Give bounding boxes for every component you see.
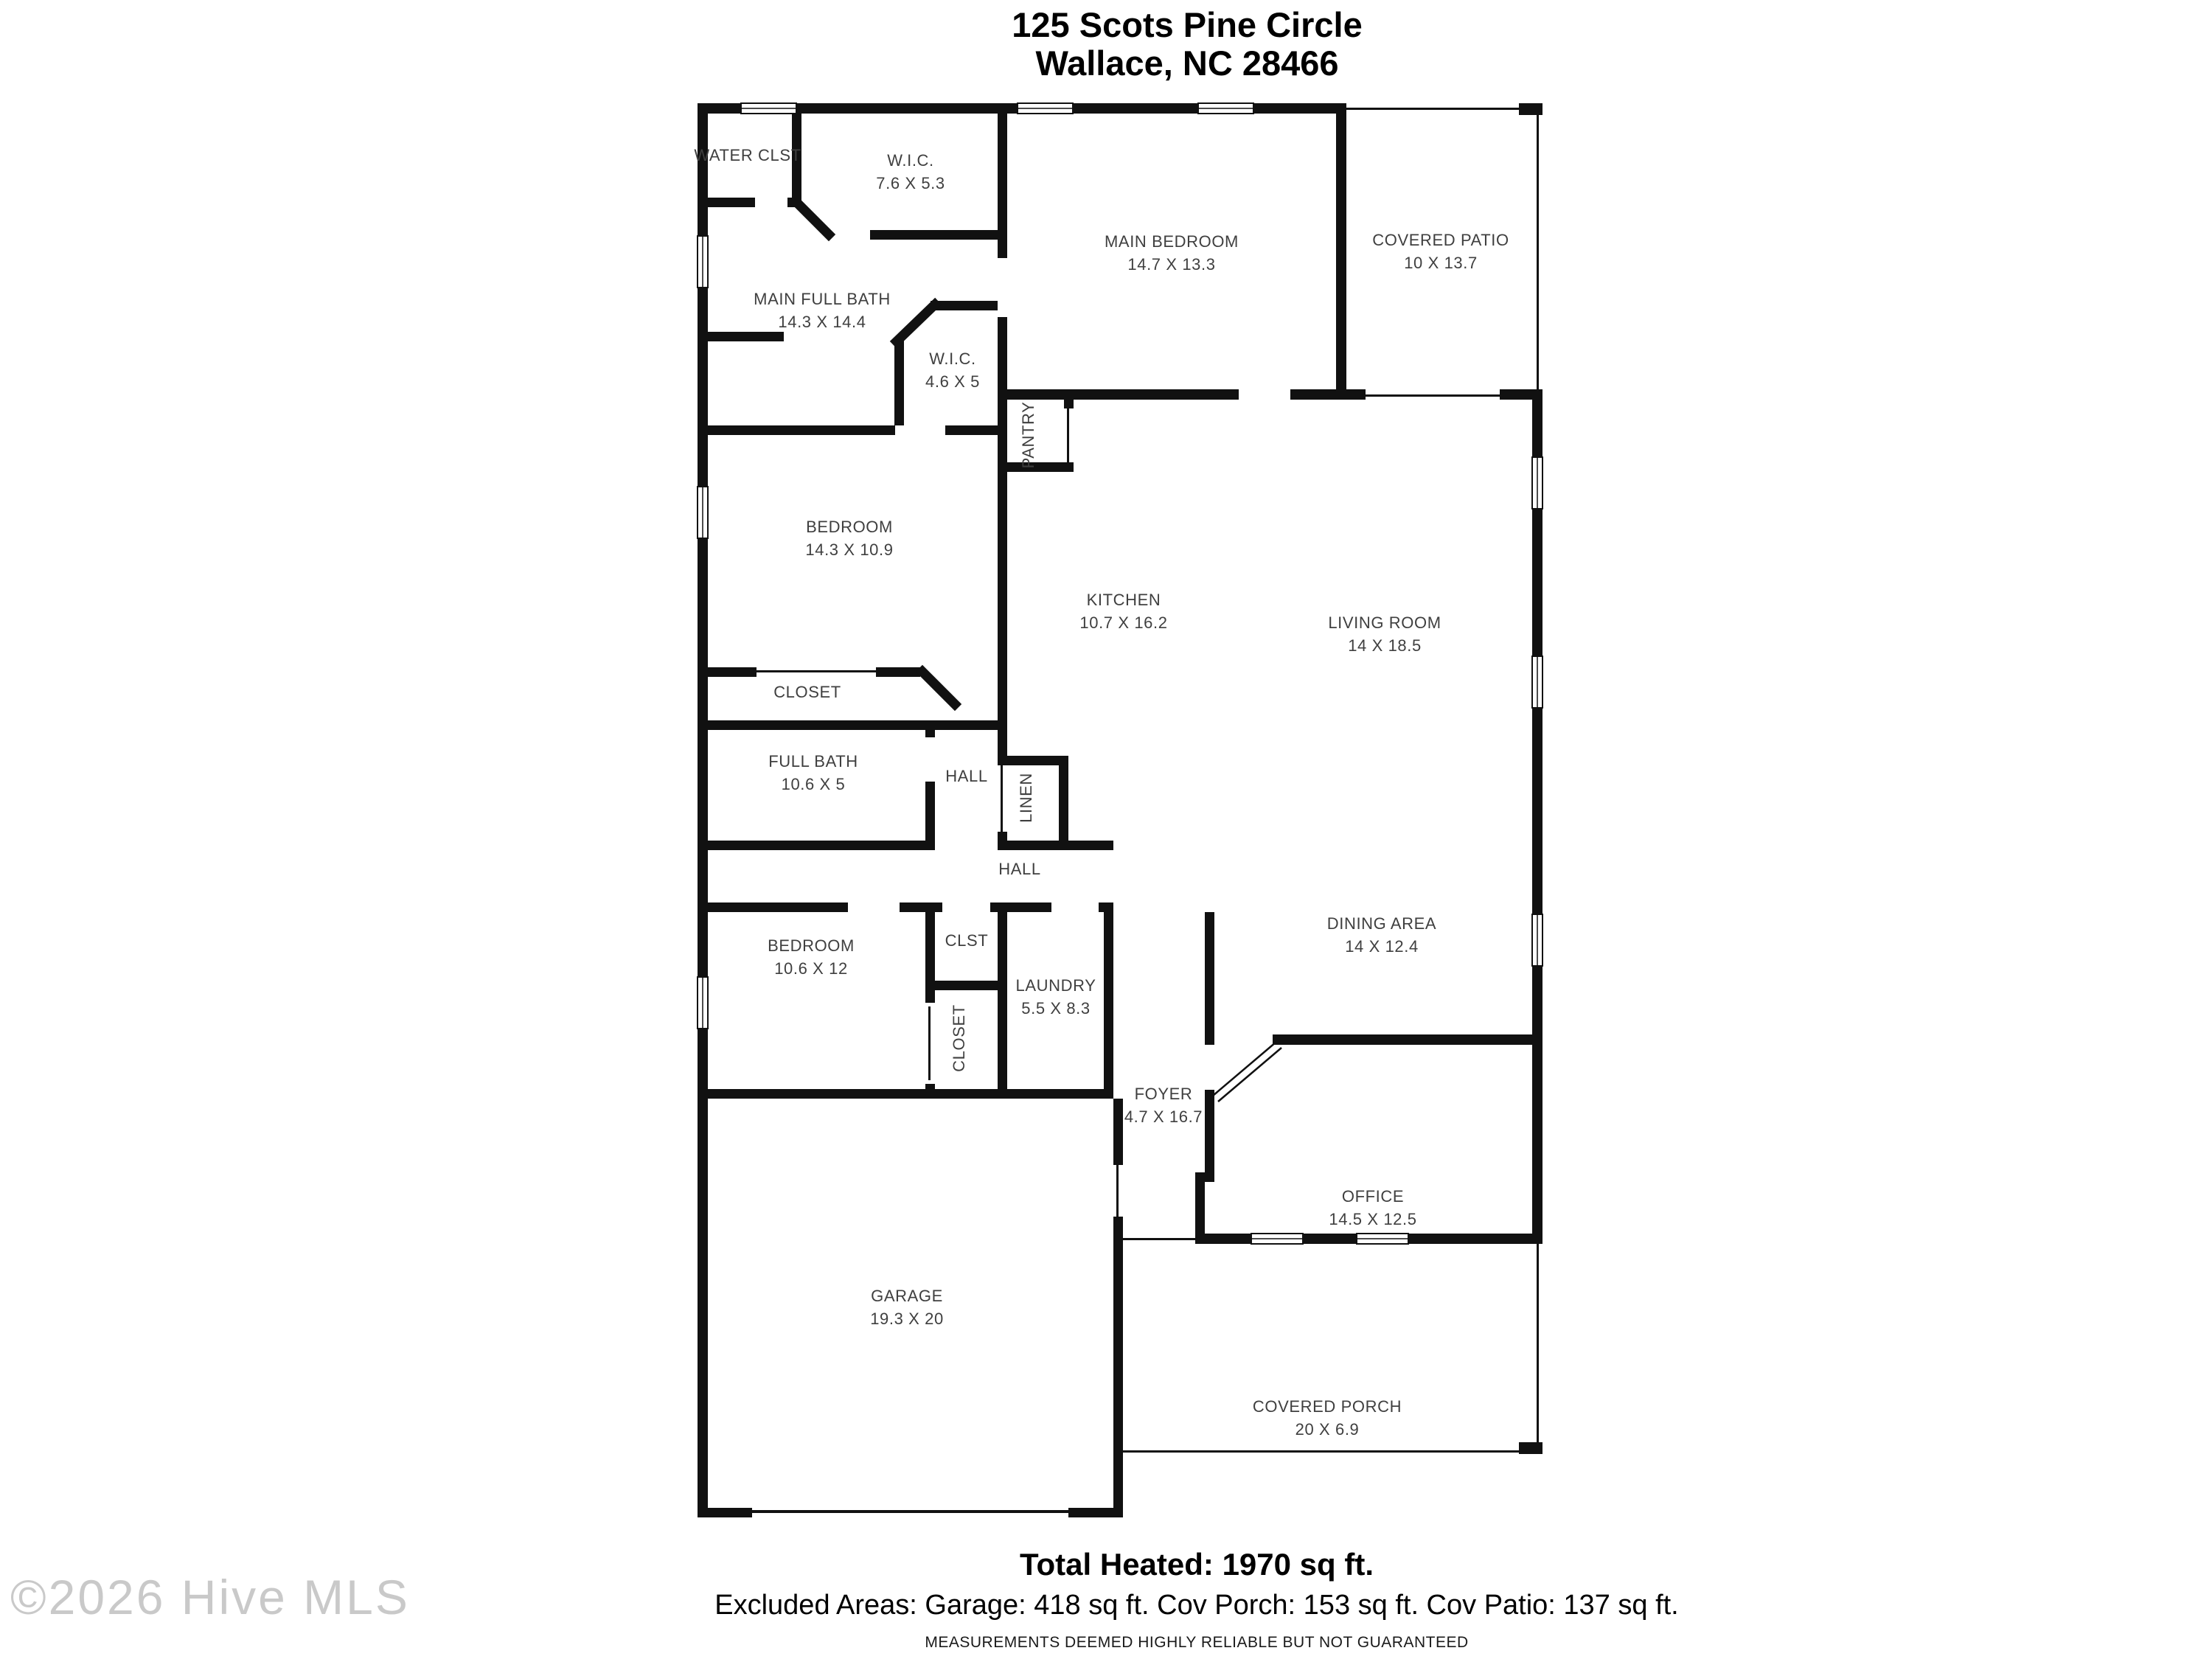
- room-label: HALL: [945, 767, 987, 785]
- window-icon: [741, 103, 796, 114]
- windows: [698, 103, 1543, 1244]
- porch-bottom-edge: [1123, 1450, 1539, 1453]
- room-label: LIVING ROOM: [1328, 613, 1441, 632]
- pantry-door: [1067, 408, 1069, 462]
- room-label: COVERED PATIO: [1372, 231, 1509, 249]
- room-label: 10.6 X 12: [774, 959, 848, 978]
- room-label: 4.6 X 5: [925, 372, 980, 391]
- garage-entry-door: [1116, 1165, 1119, 1217]
- room-label: 14.7 X 13.3: [1127, 255, 1215, 274]
- room-label: LINEN: [1017, 773, 1035, 823]
- room-labels: WATER CLSTW.I.C.7.6 X 5.3MAIN BEDROOM14.…: [694, 146, 1509, 1439]
- footer-disclaimer: MEASUREMENTS DEEMED HIGHLY RELIABLE BUT …: [925, 1634, 1468, 1652]
- window-icon: [1251, 1234, 1303, 1244]
- window-icon: [1357, 1234, 1408, 1244]
- room-label: 20 X 6.9: [1295, 1420, 1360, 1439]
- room-label: FULL BATH: [768, 752, 858, 771]
- room-label: 10 X 13.7: [1404, 254, 1478, 272]
- footer-total-heated: Total Heated: 1970 sq ft.: [1020, 1547, 1374, 1582]
- garage-door: [752, 1510, 1068, 1513]
- room-label: CLOSET: [773, 683, 841, 701]
- office-diagonal-door: [1213, 1042, 1281, 1102]
- room-label: 5.5 X 8.3: [1021, 999, 1090, 1018]
- room-label: 10.6 X 5: [782, 775, 846, 793]
- room-label: DINING AREA: [1327, 914, 1436, 933]
- wic1-angle: [797, 203, 829, 234]
- window-icon: [1532, 656, 1543, 708]
- front-door: [1123, 1238, 1195, 1240]
- room-label: 14 X 18.5: [1348, 636, 1422, 655]
- room-label: 4.7 X 16.7: [1124, 1107, 1203, 1126]
- room-label: W.I.C.: [929, 349, 976, 368]
- angled-walls: [797, 203, 955, 704]
- window-icon: [698, 487, 708, 538]
- closet-angle: [922, 672, 955, 704]
- room-label: BEDROOM: [768, 936, 855, 955]
- room-label: 10.7 X 16.2: [1079, 613, 1167, 632]
- window-icon: [698, 977, 708, 1029]
- thin-edges: [752, 108, 1539, 1513]
- floor-plan-page: 125 Scots Pine Circle Wallace, NC 28466: [0, 0, 2212, 1659]
- window-icon: [1532, 914, 1543, 966]
- closet-door: [757, 670, 876, 672]
- window-icon: [1532, 457, 1543, 509]
- closet2-door: [928, 1006, 931, 1080]
- room-label: MAIN FULL BATH: [754, 290, 891, 308]
- room-label: HALL: [998, 860, 1040, 878]
- room-label: W.I.C.: [887, 151, 934, 170]
- floor-plan-drawing: WATER CLSTW.I.C.7.6 X 5.3MAIN BEDROOM14.…: [0, 0, 2212, 1659]
- patio-right-edge: [1537, 108, 1539, 397]
- porch-right-edge: [1537, 1244, 1539, 1453]
- window-icon: [1018, 103, 1073, 114]
- patio-slider-door: [1366, 394, 1500, 397]
- room-label: 14 X 12.4: [1345, 937, 1419, 956]
- room-label: PANTRY: [1019, 402, 1037, 469]
- wic2-angle: [897, 305, 935, 341]
- room-label: 14.3 X 10.9: [805, 540, 893, 559]
- room-label: CLST: [945, 931, 989, 950]
- room-label: COVERED PORCH: [1253, 1397, 1402, 1416]
- footer-excluded-areas: Excluded Areas: Garage: 418 sq ft. Cov P…: [714, 1590, 1679, 1621]
- room-label: WATER CLST: [694, 146, 801, 164]
- room-label: 7.6 X 5.3: [876, 174, 945, 192]
- room-label: 14.3 X 14.4: [778, 313, 866, 331]
- room-label: FOYER: [1135, 1085, 1193, 1103]
- patio-top-edge: [1346, 108, 1532, 110]
- room-label: CLOSET: [950, 1004, 968, 1072]
- room-label: KITCHEN: [1087, 591, 1161, 609]
- room-label: MAIN BEDROOM: [1105, 232, 1239, 251]
- room-label: GARAGE: [871, 1287, 943, 1305]
- window-icon: [1198, 103, 1253, 114]
- room-label: OFFICE: [1342, 1187, 1404, 1206]
- window-icon: [698, 236, 708, 288]
- room-label: BEDROOM: [806, 518, 893, 536]
- room-label: 19.3 X 20: [870, 1310, 944, 1328]
- mls-watermark: ©2026 Hive MLS: [10, 1569, 410, 1625]
- linen-door: [1001, 765, 1003, 832]
- room-label: LAUNDRY: [1016, 976, 1096, 995]
- room-label: 14.5 X 12.5: [1329, 1210, 1416, 1228]
